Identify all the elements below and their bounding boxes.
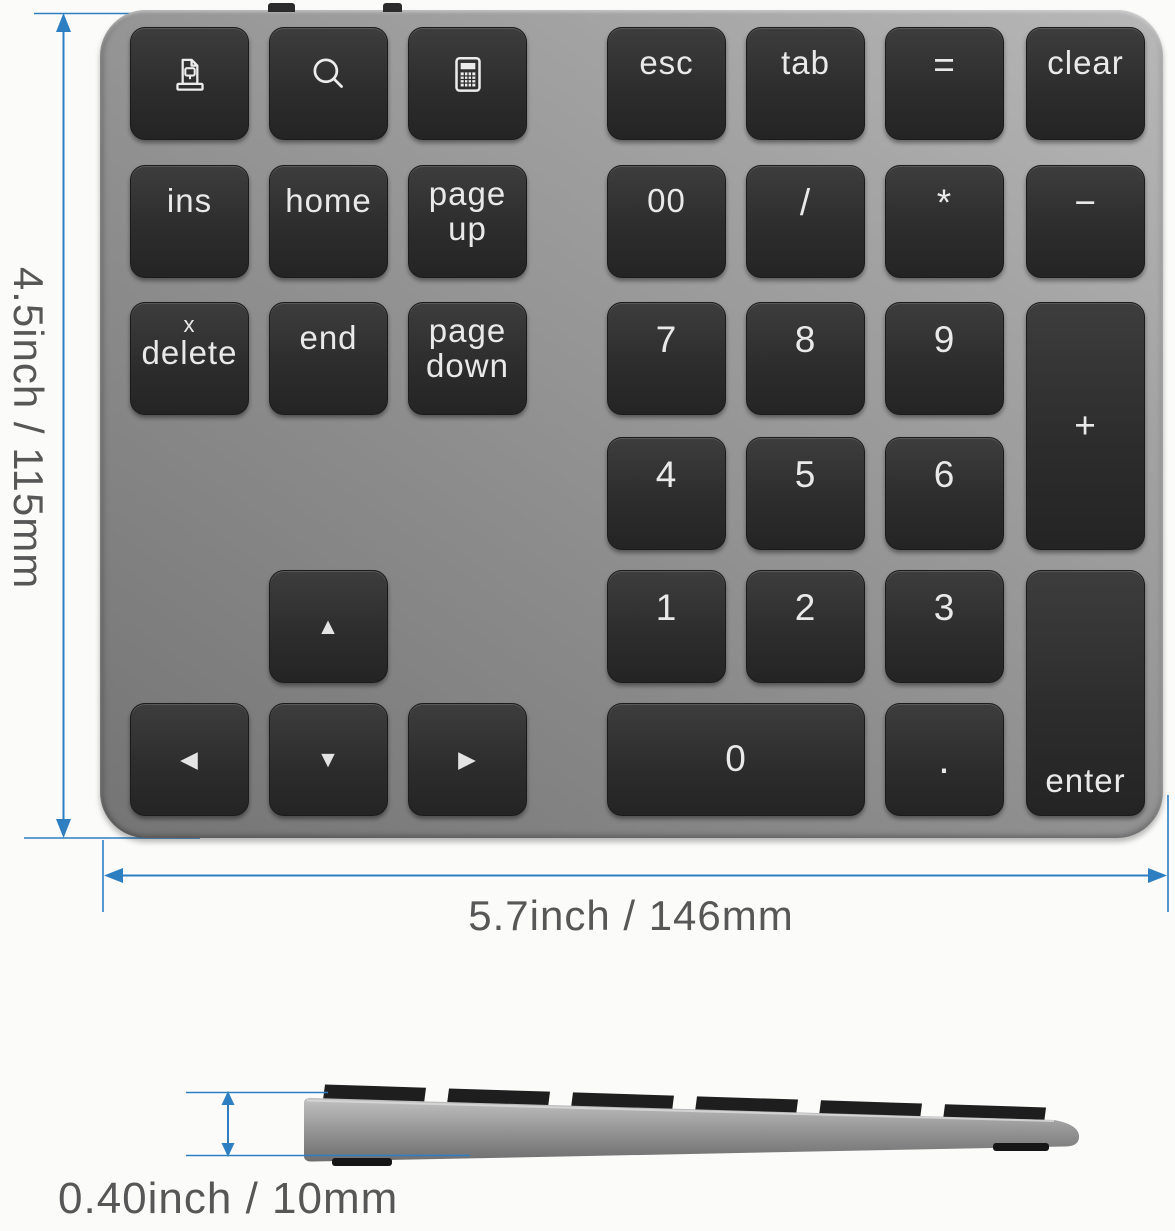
key-arrow-down[interactable]: ▼	[269, 703, 388, 816]
arrowhead-right-icon	[1148, 868, 1167, 883]
key-decimal[interactable]: .	[885, 703, 1004, 816]
key-arrow-up[interactable]: ▲	[269, 570, 388, 683]
key-label: 9	[934, 321, 956, 360]
key-label: ▶	[458, 747, 477, 771]
key-label: 2	[795, 589, 817, 628]
key-label: 4	[656, 456, 678, 495]
key-label: *	[937, 184, 952, 223]
key-search[interactable]	[269, 27, 388, 140]
key-enter[interactable]: enter	[1026, 570, 1145, 816]
key-label: +	[1074, 407, 1097, 446]
numpad-top-view: esctab=clearinshomepageup00/*−xdeleteend…	[100, 10, 1163, 838]
key-label: .	[938, 737, 951, 781]
key-5[interactable]: 5	[746, 437, 865, 550]
key-label: delete	[142, 336, 238, 371]
key-label: clear	[1047, 46, 1124, 81]
arrowhead-up-icon	[56, 13, 71, 32]
key-label: /	[800, 184, 811, 223]
key-minus[interactable]: −	[1026, 165, 1145, 278]
key-label: 8	[795, 321, 817, 360]
calculator-icon	[445, 52, 491, 98]
arrowhead-down-icon	[56, 819, 71, 838]
search-icon	[306, 52, 352, 98]
key-label: up	[448, 212, 487, 247]
key-label: end	[299, 321, 357, 356]
power-switch-nub[interactable]	[268, 3, 295, 12]
screen-doc-icon	[167, 52, 213, 98]
key-label: 5	[795, 456, 817, 495]
key-calculator[interactable]	[408, 27, 527, 140]
key-clear[interactable]: clear	[1026, 27, 1145, 140]
key-9[interactable]: 9	[885, 302, 1004, 415]
key-page-up[interactable]: pageup	[408, 165, 527, 278]
key-3[interactable]: 3	[885, 570, 1004, 683]
side-view-foot-right	[993, 1143, 1049, 1151]
key-screen-doc[interactable]	[130, 27, 249, 140]
key-label: 6	[934, 456, 956, 495]
key-label: page	[429, 314, 506, 349]
key-0[interactable]: 0	[607, 703, 865, 816]
key-label: 00	[647, 184, 686, 219]
key-1[interactable]: 1	[607, 570, 726, 683]
key-ins[interactable]: ins	[130, 165, 249, 278]
key-label: 0	[725, 740, 747, 779]
height-dimension-label: 4.5inch / 115mm	[2, 168, 52, 688]
key-esc[interactable]: esc	[607, 27, 726, 140]
key-label: =	[933, 46, 956, 85]
key-double-zero[interactable]: 00	[607, 165, 726, 278]
key-page-down[interactable]: pagedown	[408, 302, 527, 415]
key-divide[interactable]: /	[746, 165, 865, 278]
width-dimension-label: 5.7inch / 146mm	[331, 892, 931, 940]
key-2[interactable]: 2	[746, 570, 865, 683]
key-tab[interactable]: tab	[746, 27, 865, 140]
key-multiply[interactable]: *	[885, 165, 1004, 278]
key-label: 1	[656, 589, 678, 628]
key-label: ▲	[317, 614, 341, 638]
key-label: x	[184, 314, 196, 336]
key-label: −	[1074, 184, 1097, 223]
thickness-dimension-label: 0.40inch / 10mm	[58, 1174, 398, 1224]
key-label: tab	[781, 46, 830, 81]
key-8[interactable]: 8	[746, 302, 865, 415]
key-equals[interactable]: =	[885, 27, 1004, 140]
key-label: home	[285, 184, 372, 219]
key-home[interactable]: home	[269, 165, 388, 278]
key-label: ◀	[180, 747, 199, 771]
key-label: down	[426, 349, 509, 384]
key-4[interactable]: 4	[607, 437, 726, 550]
numpad-side-view	[175, 1055, 1100, 1185]
key-label: 3	[934, 589, 956, 628]
key-arrow-right[interactable]: ▶	[408, 703, 527, 816]
key-label: ▼	[317, 747, 341, 771]
key-label: esc	[639, 46, 693, 81]
key-plus[interactable]: +	[1026, 302, 1145, 550]
key-6[interactable]: 6	[885, 437, 1004, 550]
key-end[interactable]: end	[269, 302, 388, 415]
key-label: 7	[656, 321, 678, 360]
key-delete[interactable]: xdelete	[130, 302, 249, 415]
key-arrow-left[interactable]: ◀	[130, 703, 249, 816]
arrowhead-left-icon	[104, 868, 123, 883]
pairing-switch-nub[interactable]	[383, 3, 402, 12]
key-label: ins	[167, 184, 212, 219]
side-view-foot-left	[332, 1158, 392, 1166]
key-label: enter	[1045, 764, 1125, 799]
key-label: page	[429, 177, 506, 212]
key-7[interactable]: 7	[607, 302, 726, 415]
